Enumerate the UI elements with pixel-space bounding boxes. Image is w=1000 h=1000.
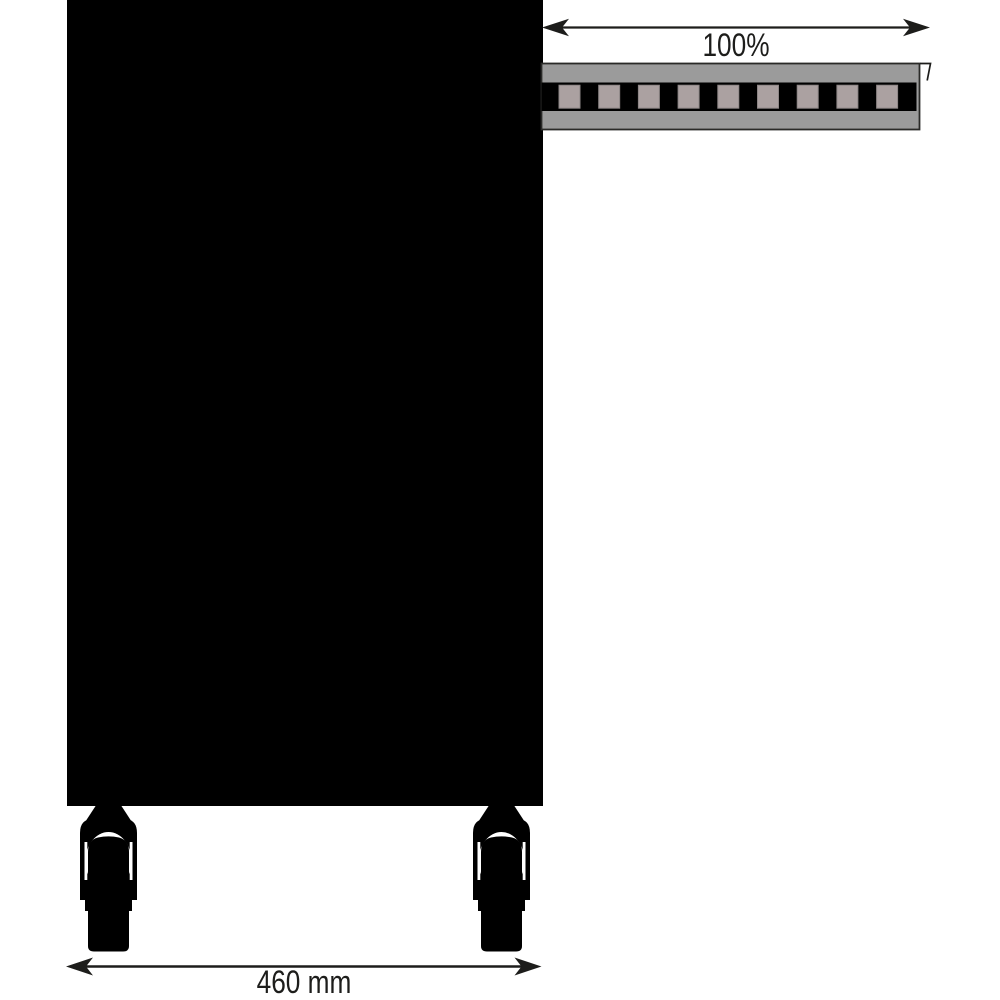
caster-fork-slot-right	[130, 842, 133, 880]
rail-bearing-square	[797, 85, 818, 108]
caster-wheel	[88, 836, 129, 951]
caster-left	[80, 800, 137, 952]
rail-bearing-square	[758, 85, 779, 108]
rail-bearing-square	[638, 85, 659, 108]
caster-right	[473, 800, 530, 952]
drawing-canvas: 100% 460 mm	[0, 0, 1000, 1000]
rail-bearing-square	[559, 85, 580, 108]
dimension-label-extension: 100%	[577, 31, 895, 59]
dimension-label-depth: 460 mm	[109, 968, 499, 996]
rail-end-hook-mark	[920, 64, 931, 81]
rail-bearing-square	[877, 85, 898, 108]
caster-fork-slot-right	[523, 842, 526, 880]
rail-bearing-squares	[559, 85, 898, 108]
caster-fork-slot-left	[85, 842, 88, 880]
telescopic-rail	[542, 64, 931, 130]
rail-bearing-square	[718, 85, 739, 108]
caster-wheel	[481, 836, 522, 951]
rail-bearing-square	[678, 85, 699, 108]
rail-bearing-square	[837, 85, 858, 108]
caster-fork-slot-left	[478, 842, 481, 880]
rail-bearing-square	[599, 85, 620, 108]
technical-drawing-layer	[0, 0, 1000, 1000]
